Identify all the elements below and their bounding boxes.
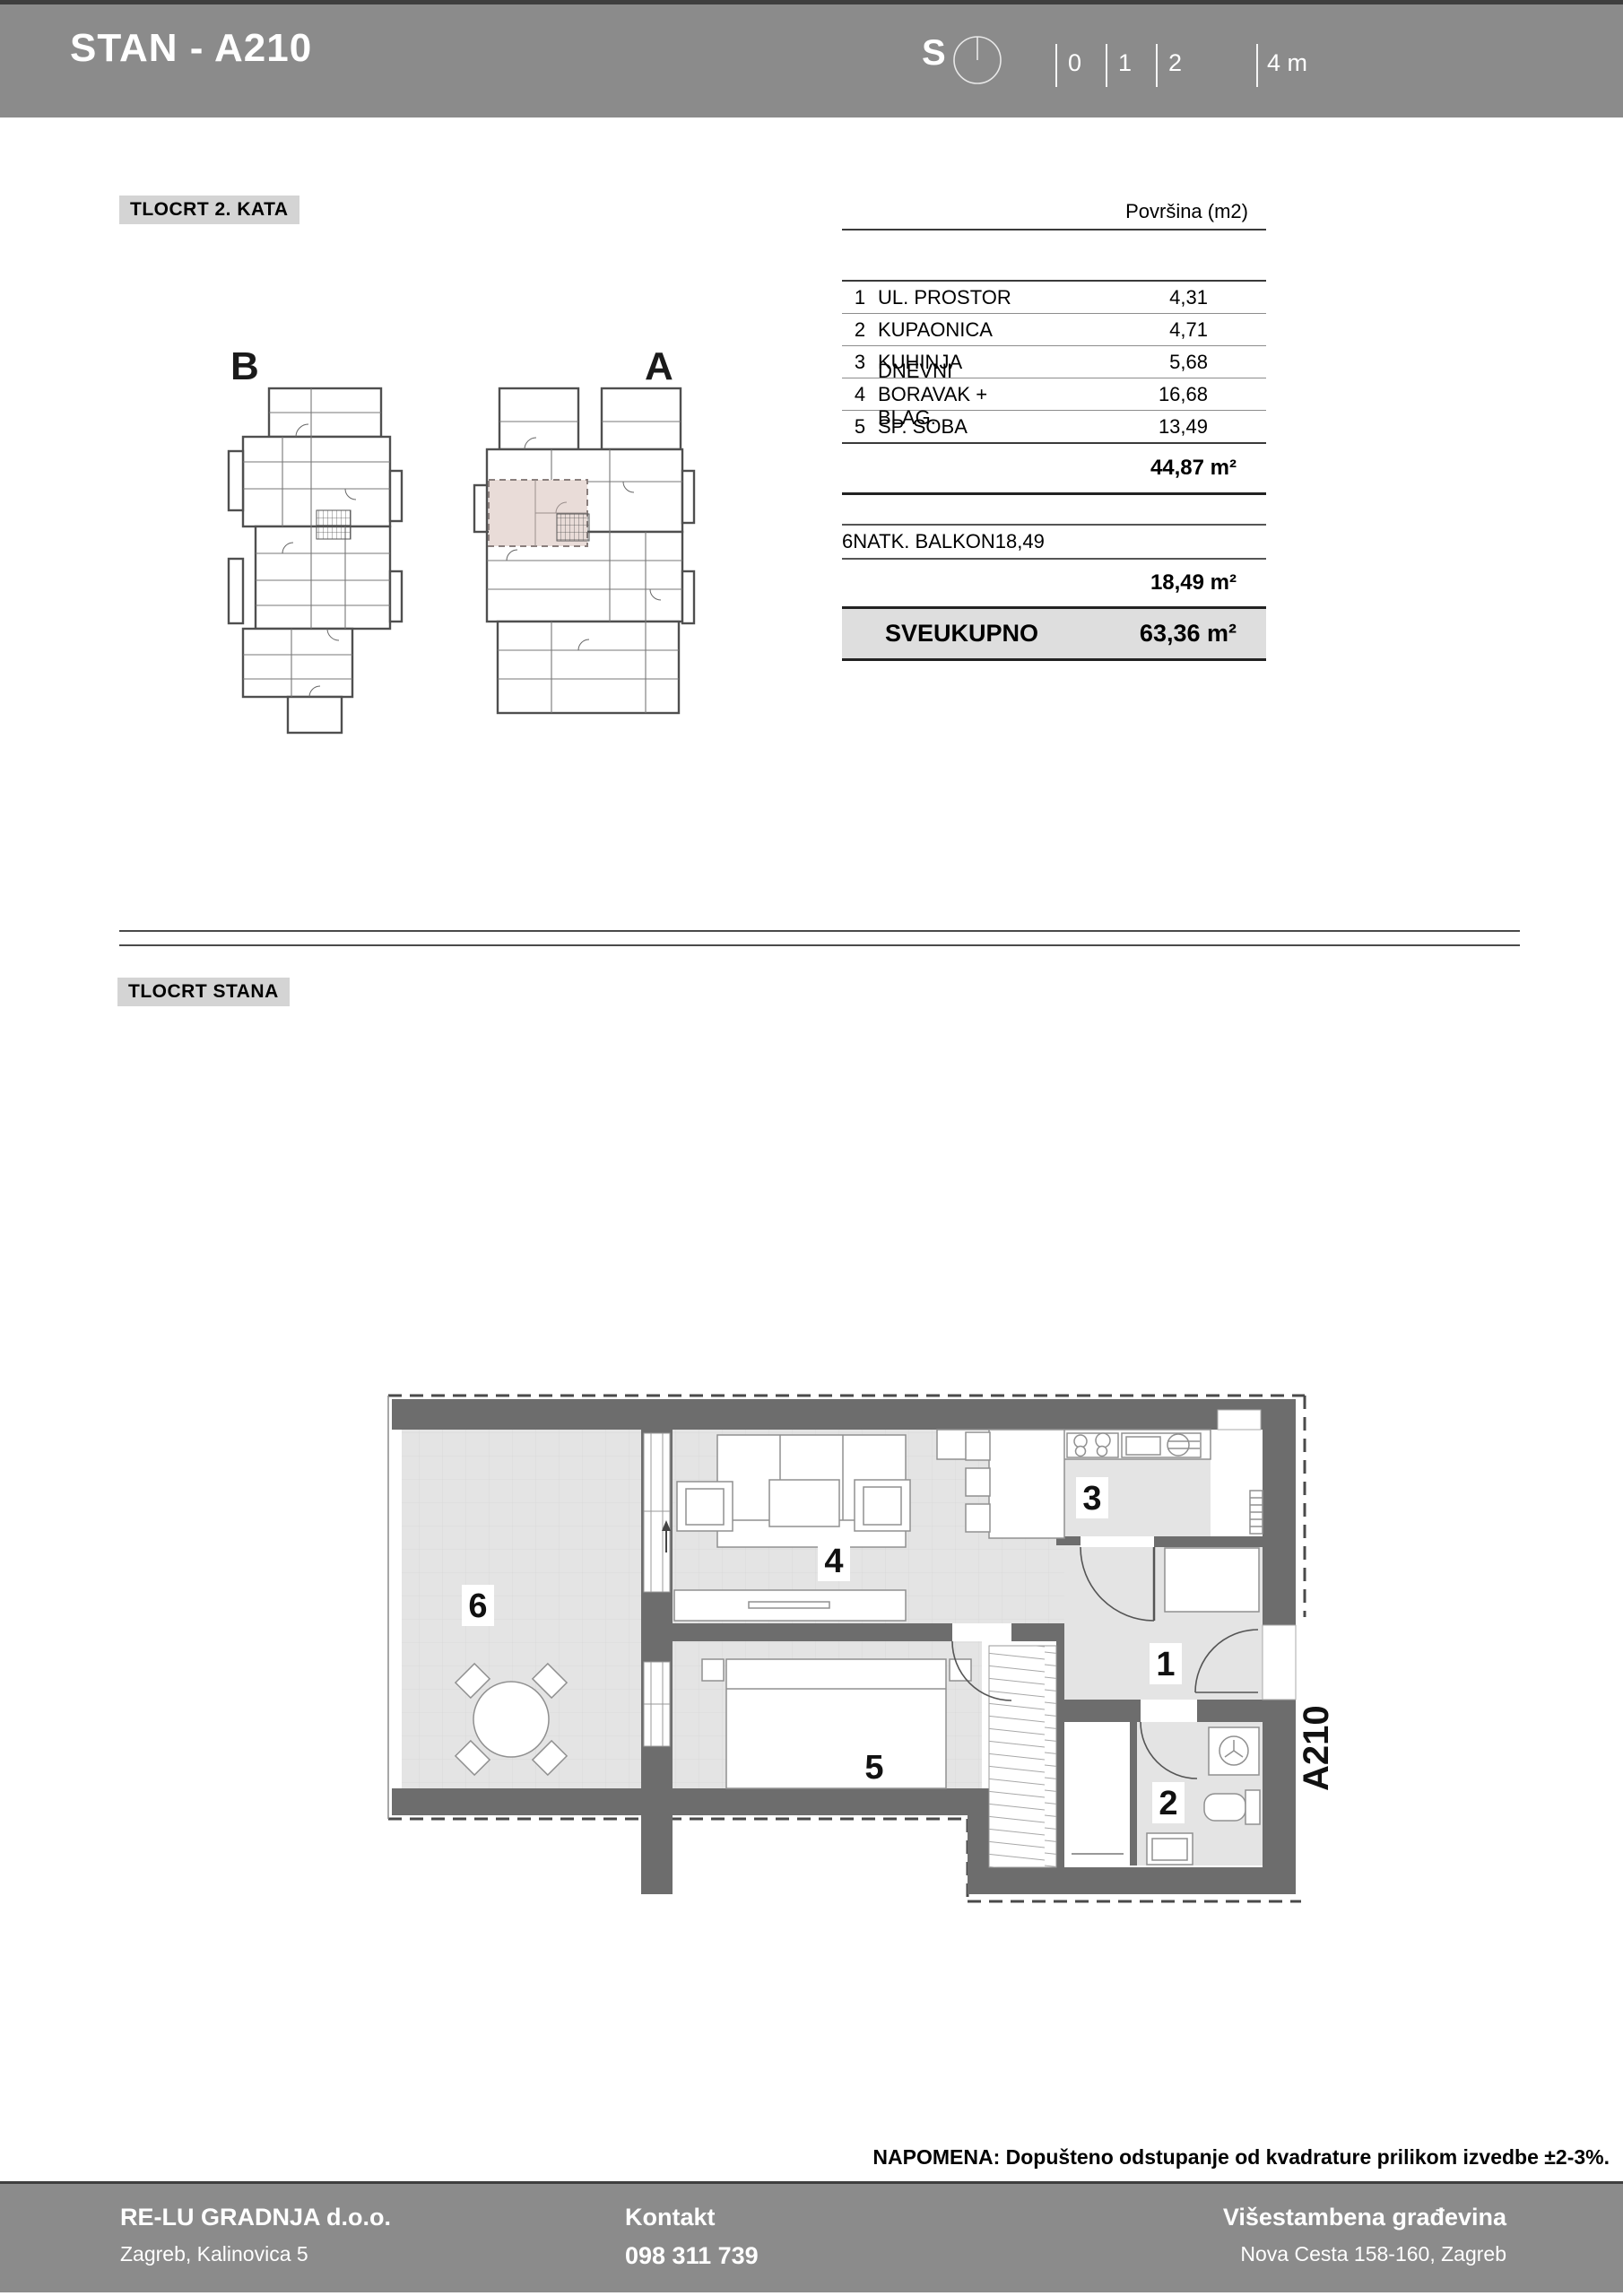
mini-plan-a: [474, 388, 694, 713]
room-name: KUPAONICA: [878, 318, 1046, 342]
room-name: UL. PROSTOR: [878, 286, 1046, 309]
header-bar: STAN - A210 S 0 1 2 4 m: [0, 0, 1623, 117]
contact-phone: 098 311 739: [625, 2242, 759, 2270]
scale-label-0: 0: [1068, 49, 1081, 77]
total-label: SVEUKUPNO: [842, 620, 1038, 648]
company-name: RE-LU GRADNJA d.o.o.: [120, 2204, 391, 2231]
company-address: Zagreb, Kalinovica 5: [120, 2242, 391, 2266]
total-row: SVEUKUPNO 63,36 m²: [842, 606, 1266, 661]
table-row: 5 SP. SOBA 13,49: [842, 411, 1266, 444]
room-area: 13,49: [1046, 415, 1266, 439]
mini-plan-b: [229, 388, 402, 733]
window-icon: [644, 1433, 670, 1592]
scale-tick: [1156, 44, 1158, 87]
room-area: 4,71: [1046, 318, 1266, 342]
divider-line: [119, 944, 1520, 946]
room-label-2: 2: [1159, 1785, 1177, 1822]
section-label-floor: TLOCRT 2. KATA: [119, 196, 299, 224]
table-row: 2 KUPAONICA 4,71: [842, 314, 1266, 346]
coffee-table-icon: [769, 1480, 839, 1526]
bar-stool-icon: [966, 1468, 990, 1496]
room-label-3: 3: [1082, 1480, 1101, 1518]
room-area: 16,68: [1046, 383, 1266, 406]
scale-label-4m: 4 m: [1267, 49, 1307, 77]
scale-label-1: 1: [1118, 49, 1132, 77]
room-label-6: 6: [468, 1587, 487, 1625]
contact-label: Kontakt: [625, 2204, 759, 2231]
room-number: 6: [842, 530, 853, 553]
room-label-4: 4: [824, 1543, 843, 1580]
bar-stool-icon: [966, 1504, 990, 1532]
mini-plan-b-label: B: [230, 345, 259, 388]
room-number: 1: [842, 286, 878, 309]
nightstand-icon: [702, 1659, 724, 1681]
bar-stool-icon: [966, 1432, 990, 1460]
footer-bar: RE-LU GRADNJA d.o.o. Zagreb, Kalinovica …: [0, 2181, 1623, 2292]
door-opening: [1141, 1700, 1197, 1722]
room-area: 4,31: [1046, 286, 1266, 309]
stove-icon: [1067, 1433, 1118, 1457]
room-number: 5: [842, 415, 878, 439]
unit-label: A210: [1297, 1705, 1336, 1791]
building-key-plans: B A: [202, 345, 713, 749]
kitchen-bar: [989, 1430, 1064, 1538]
footer-contact: Kontakt 098 311 739: [625, 2204, 759, 2270]
table-icon: [473, 1682, 549, 1757]
room-label-1: 1: [1156, 1646, 1175, 1683]
bed-icon: [726, 1659, 946, 1788]
note-text: NAPOMENA: Dopušteno odstupanje od kvadra…: [872, 2145, 1610, 2170]
plan-sheet: STAN - A210 S 0 1 2 4 m TLOCRT 2. KATA: [0, 0, 1623, 2296]
interior-subtotal: 44,87 m²: [842, 444, 1266, 495]
room-area: 5,68: [1046, 351, 1266, 374]
room-number: 4: [842, 383, 878, 406]
footer-company: RE-LU GRADNJA d.o.o. Zagreb, Kalinovica …: [120, 2204, 391, 2266]
balcony-subtotal: 18,49 m²: [842, 560, 1266, 606]
footer-building: Višestambena građevina Nova Cesta 158-16…: [1223, 2204, 1506, 2266]
building-address: Nova Cesta 158-160, Zagreb: [1223, 2242, 1506, 2266]
table-row: 4 DNEVNI BORAVAK + BLAG. 16,68: [842, 378, 1266, 411]
section-label-unit: TLOCRT STANA: [117, 978, 290, 1006]
closet: [1165, 1548, 1259, 1612]
divider-line: [119, 930, 1520, 932]
wardrobe-icon: [989, 1646, 1056, 1867]
area-table: Površina (m2) 1 UL. PROSTOR 4,31 2 KUPAO…: [842, 199, 1266, 661]
area-table-header: Površina (m2): [842, 199, 1266, 230]
entrance-opening: [1263, 1625, 1296, 1700]
scale-tick: [1055, 44, 1057, 87]
room-name: NATK. BALKON: [853, 530, 995, 553]
page-title: STAN - A210: [70, 26, 312, 71]
window-icon: [1218, 1410, 1261, 1430]
scale-tick: [1106, 44, 1107, 87]
table-row: 1 UL. PROSTOR 4,31: [842, 282, 1266, 314]
total-value: 63,36 m²: [1140, 620, 1266, 648]
room-number: 3: [842, 351, 878, 374]
apartment-floor-plan: 6 4 3 1 5 2 A210: [372, 1386, 1336, 1924]
scale-label-2: 2: [1168, 49, 1182, 77]
table-row-balcony: 6 NATK. BALKON 18,49: [842, 526, 1266, 560]
mini-plan-a-label: A: [645, 345, 673, 388]
room-name: SP. SOBA: [878, 415, 1046, 439]
room-number: 2: [842, 318, 878, 342]
area-table-rows: 1 UL. PROSTOR 4,31 2 KUPAONICA 4,71 3 KU…: [842, 280, 1266, 444]
room-area: 18,49: [995, 530, 1045, 553]
building-name: Višestambena građevina: [1223, 2204, 1506, 2231]
toilet-icon: [1204, 1794, 1245, 1821]
north-label: S: [922, 33, 946, 74]
compass-icon: [949, 30, 1006, 87]
door-opening: [952, 1623, 1011, 1641]
scale-tick: [1256, 44, 1258, 87]
room-label-5: 5: [864, 1749, 883, 1787]
door-opening: [1081, 1536, 1154, 1547]
